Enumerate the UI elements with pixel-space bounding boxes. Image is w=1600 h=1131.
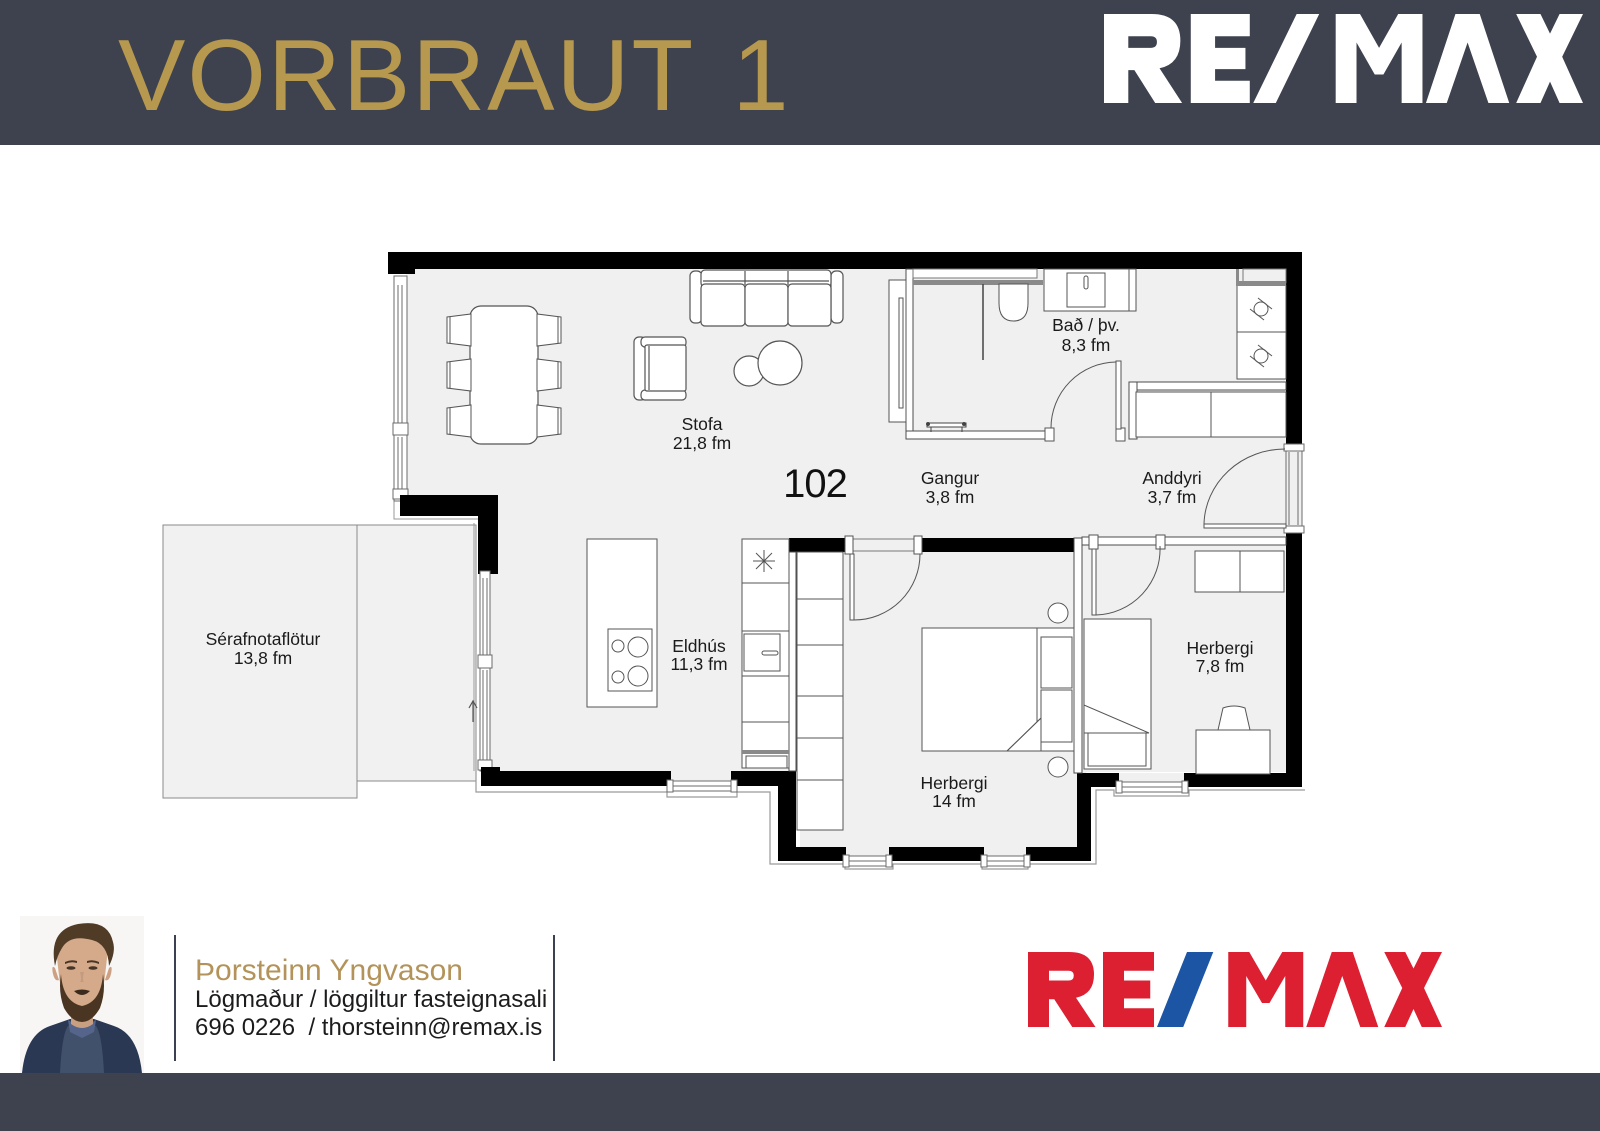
svg-text:8,3 fm: 8,3 fm [1062, 335, 1111, 355]
svg-text:3,7 fm: 3,7 fm [1148, 487, 1197, 507]
svg-text:Anddyri: Anddyri [1142, 468, 1201, 488]
svg-text:Stofa: Stofa [682, 414, 723, 434]
svg-text:Sérafnotaflötur: Sérafnotaflötur [206, 629, 321, 649]
svg-text:3,8 fm: 3,8 fm [926, 487, 975, 507]
svg-text:Herbergi: Herbergi [1186, 638, 1253, 658]
svg-text:Gangur: Gangur [921, 468, 980, 488]
svg-text:21,8 fm: 21,8 fm [673, 433, 731, 453]
svg-text:Eldhús: Eldhús [672, 636, 726, 656]
svg-text:13,8 fm: 13,8 fm [234, 648, 292, 668]
svg-text:14 fm: 14 fm [932, 791, 976, 811]
svg-text:Herbergi: Herbergi [920, 773, 987, 793]
svg-text:11,3 fm: 11,3 fm [670, 654, 727, 674]
svg-text:7,8 fm: 7,8 fm [1196, 656, 1245, 676]
svg-text:Bað / þv.: Bað / þv. [1052, 315, 1120, 335]
svg-text:102: 102 [783, 462, 847, 506]
